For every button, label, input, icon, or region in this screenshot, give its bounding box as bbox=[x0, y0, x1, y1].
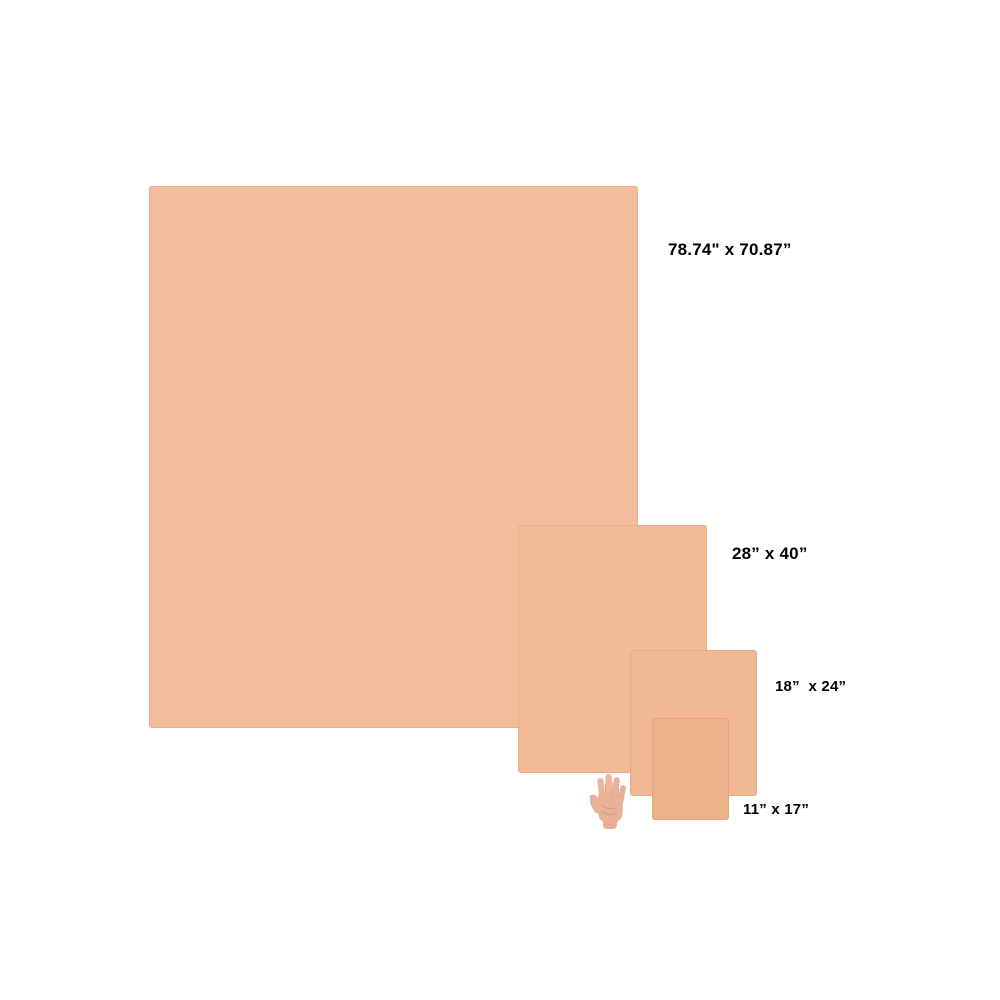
sheet-11x17 bbox=[652, 718, 729, 820]
size-label-28x40: 28” x 40” bbox=[732, 544, 808, 564]
size-comparison-diagram: 78.74" x 70.87” 28” x 40” 18” x 24” 11” … bbox=[0, 0, 1000, 1000]
size-label-largest: 78.74" x 70.87” bbox=[668, 240, 792, 260]
hand-for-scale-icon bbox=[590, 772, 630, 830]
size-label-18x24: 18” x 24” bbox=[775, 678, 846, 695]
size-label-11x17: 11” x 17” bbox=[743, 801, 809, 818]
